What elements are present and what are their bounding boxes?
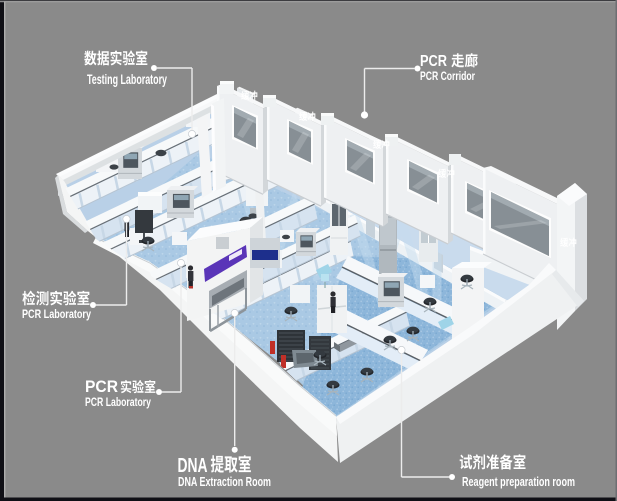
svg-text:DNA: DNA [178, 455, 208, 477]
svg-text:PCR Corridor: PCR Corridor [420, 71, 475, 83]
svg-text:Testing Laboratory: Testing Laboratory [87, 72, 167, 87]
svg-text:Reagent preparation room: Reagent preparation room [462, 475, 575, 489]
svg-text:PCR Laboratory: PCR Laboratory [85, 397, 151, 409]
svg-text:PCR: PCR [85, 378, 118, 396]
svg-text:PCR Laboratory: PCR Laboratory [22, 309, 91, 321]
svg-text:DNA Extraction Room: DNA Extraction Room [178, 475, 271, 489]
svg-text:PCR: PCR [420, 53, 447, 70]
